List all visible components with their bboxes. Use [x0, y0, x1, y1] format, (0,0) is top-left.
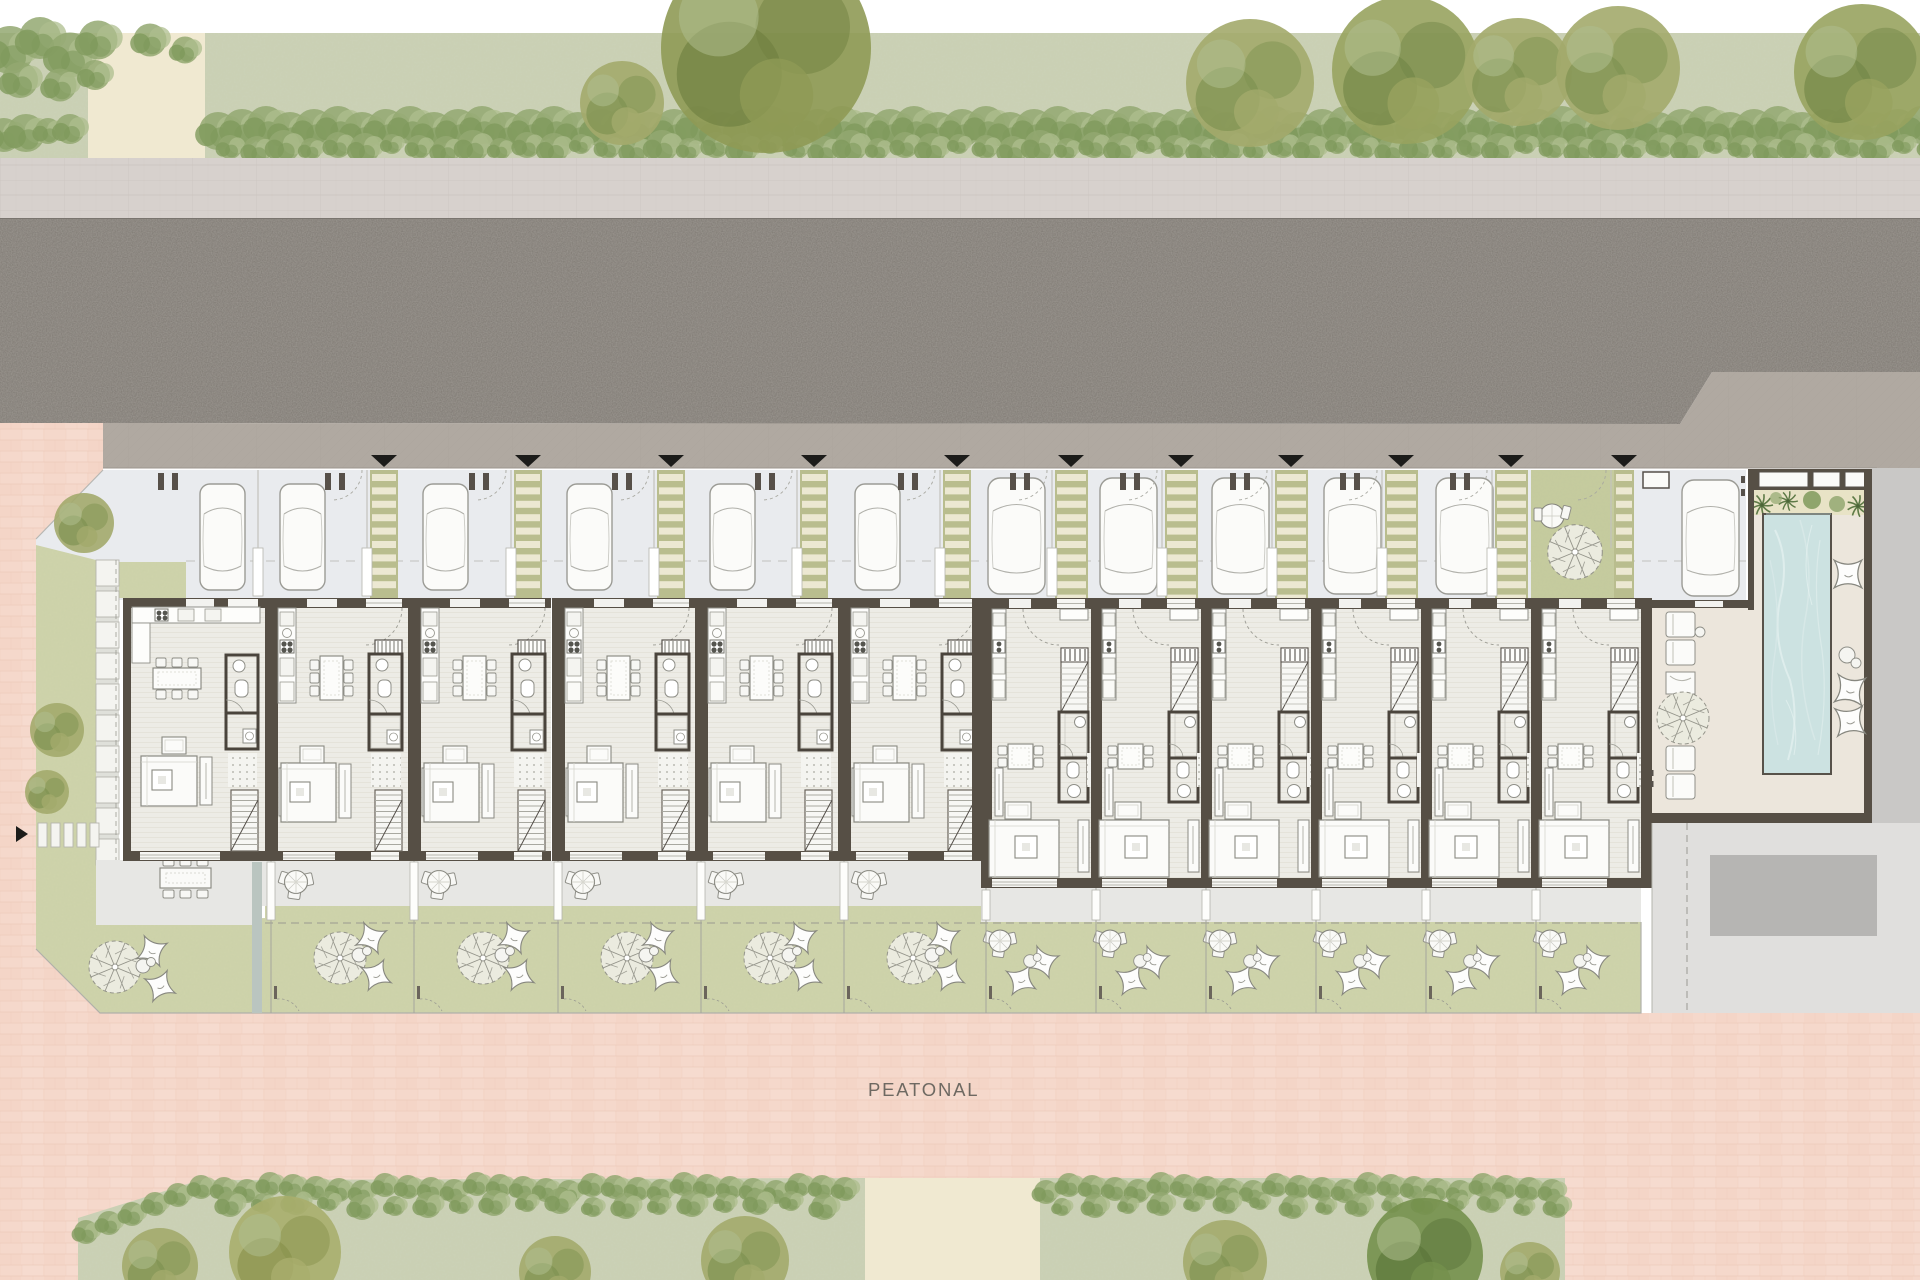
svg-text:PEATONAL: PEATONAL: [868, 1079, 979, 1100]
